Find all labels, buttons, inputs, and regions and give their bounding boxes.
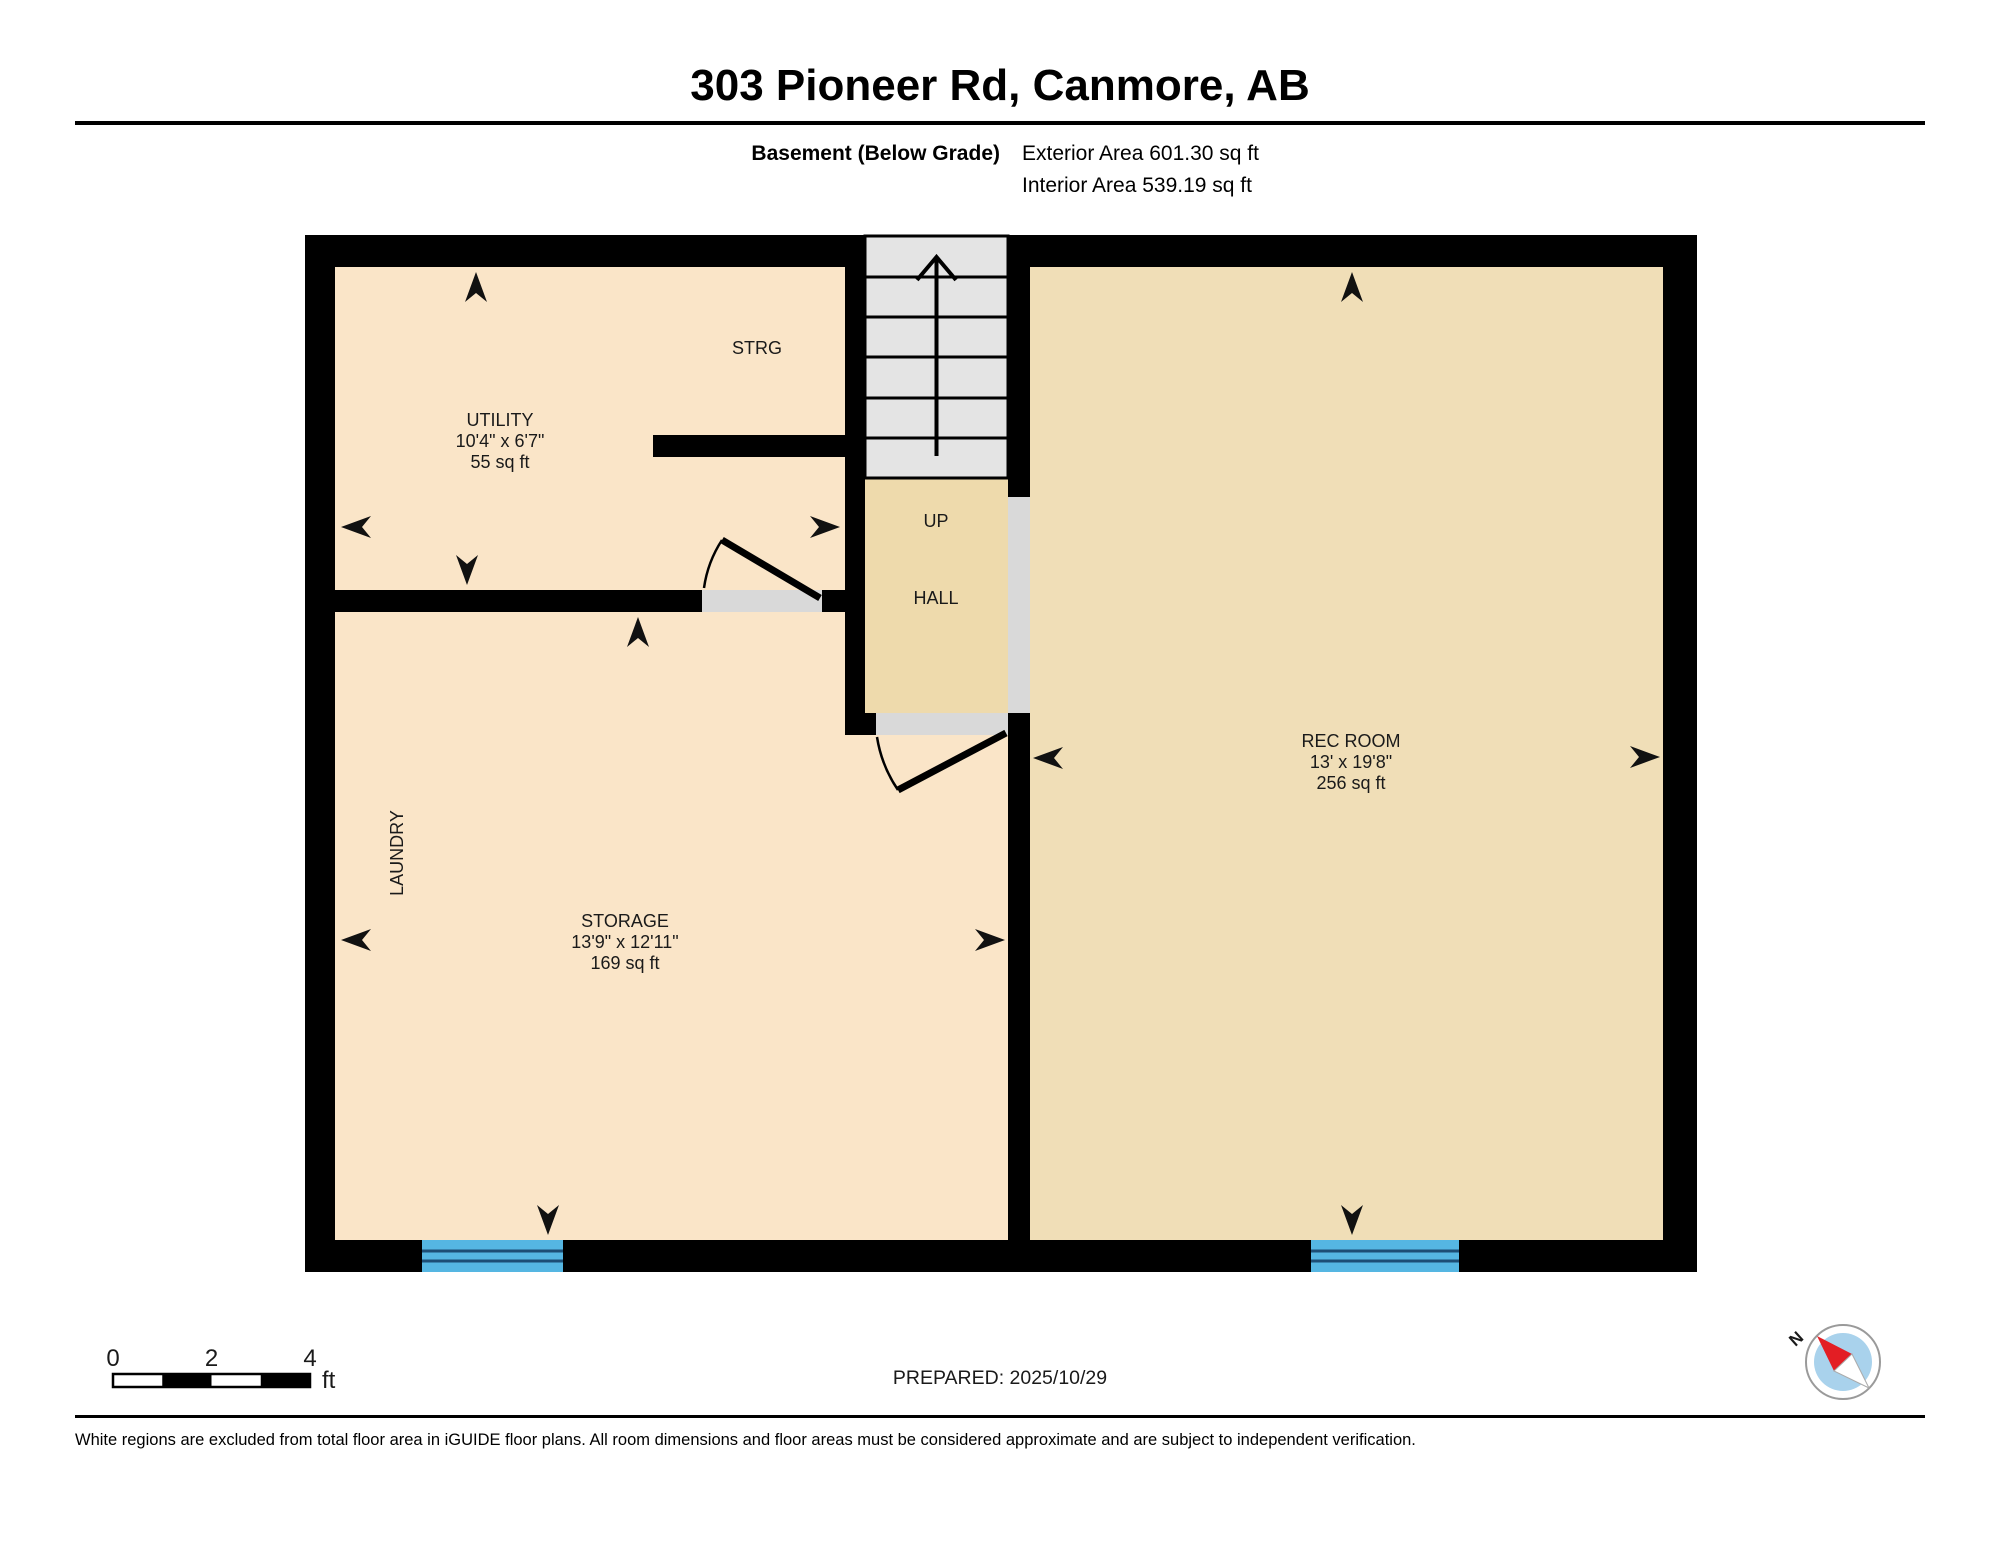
label-laundry: LAUNDRY [387, 810, 407, 896]
floorplan-svg: STRG UTILITY 10'4" x 6'7" 55 sq ft UP HA… [0, 0, 2000, 1545]
threshold-utility-door [702, 590, 822, 612]
window-rec [1311, 1240, 1459, 1272]
footer-divider [75, 1415, 1925, 1418]
label-up: UP [923, 511, 948, 531]
label-storage: STORAGE [581, 911, 669, 931]
wall-hall-south-left [845, 713, 876, 735]
wall-utility-storage [335, 590, 702, 612]
label-rec-room: REC ROOM [1302, 731, 1401, 751]
scale-label-4: 4 [303, 1345, 316, 1372]
opening-hall-rec [1008, 497, 1030, 713]
label-rec-room-area: 256 sq ft [1316, 773, 1385, 793]
label-storage-area: 169 sq ft [590, 953, 659, 973]
label-hall: HALL [913, 588, 958, 608]
room-utility-floor [335, 267, 845, 590]
label-utility: UTILITY [466, 410, 533, 430]
label-utility-dimensions: 10'4" x 6'7" [456, 431, 545, 451]
wall-rec-west-upper [1008, 235, 1030, 497]
label-strg: STRG [732, 338, 782, 358]
window-storage [422, 1240, 563, 1272]
label-storage-dimensions: 13'9" x 12'11" [571, 932, 678, 952]
scale-unit: ft [322, 1367, 336, 1394]
threshold-storage-door [876, 713, 1008, 735]
wall-strg-stub [653, 435, 848, 457]
wall-hall-west [845, 235, 865, 735]
compass-n-label: N [1785, 1328, 1807, 1350]
compass: N [1785, 1325, 1880, 1399]
floorplan-page: 303 Pioneer Rd, Canmore, AB Basement (Be… [0, 0, 2000, 1545]
prepared-date: PREPARED: 2025/10/29 [893, 1367, 1107, 1389]
label-rec-room-dimensions: 13' x 19'8" [1310, 752, 1392, 772]
scale-bar: 0 2 4 ft [106, 1345, 335, 1394]
scale-label-0: 0 [106, 1345, 119, 1372]
wall-utility-stub [822, 590, 845, 612]
wall-rec-west-lower [1008, 713, 1030, 1240]
label-utility-area: 55 sq ft [470, 452, 529, 472]
stairs [865, 236, 1008, 478]
scale-label-2: 2 [205, 1345, 218, 1372]
footer-disclaimer: White regions are excluded from total fl… [75, 1430, 1925, 1451]
